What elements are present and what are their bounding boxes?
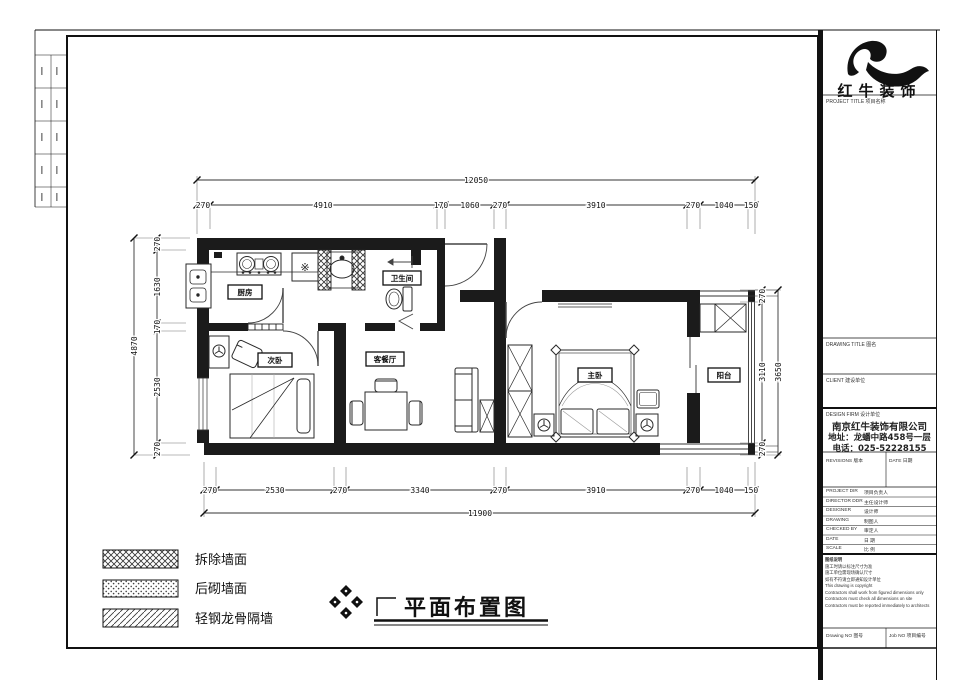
svg-text:3910: 3910 (586, 486, 605, 495)
legend: 拆除墙面 后砌墙面 轻钢龙骨隔墙 (103, 550, 273, 627)
svg-text:270: 270 (153, 442, 162, 457)
label-balcony: 阳台 (717, 370, 732, 380)
drawing-title: 平面布置图 (404, 595, 529, 620)
svg-text:150: 150 (744, 201, 759, 210)
label-living: 客餐厅 (373, 354, 397, 364)
sofa (455, 368, 478, 432)
note-line: This drawing is copyright (825, 583, 872, 588)
drawing-sheet: ※ 厨房 卫生间 次卧 客餐厅 主卧 阳台 (0, 0, 960, 680)
svg-text:3340: 3340 (410, 486, 429, 495)
field-value: 日 期 (864, 537, 875, 544)
label-master: 主卧 (588, 370, 603, 380)
balcony-cabinet (700, 304, 746, 332)
field-label: DIRECTOR DDR (826, 499, 863, 504)
svg-text:1040: 1040 (714, 486, 733, 495)
legend-newwall-label: 后砌墙面 (195, 581, 247, 596)
svg-text:4910: 4910 (313, 201, 332, 210)
sliding-door (248, 324, 283, 330)
svg-text:270: 270 (686, 201, 701, 210)
svg-text:270: 270 (758, 289, 767, 304)
bedroom2-furniture (209, 336, 314, 438)
field-value: 比 例 (864, 546, 875, 553)
revisions-label: REVISIONS 版本 (826, 457, 863, 464)
note-line: 施工单位需现场确认尺寸 (825, 570, 872, 576)
svg-text:270: 270 (686, 486, 701, 495)
field-label: DESIGNER (826, 508, 851, 513)
legend-demolish-label: 拆除墙面 (195, 552, 247, 567)
field-label: CHECKED BY (826, 527, 857, 532)
field-value: 主任设计师 (864, 499, 888, 506)
dimension-ticks (131, 177, 782, 517)
note-line: 如有不符请立即通知设计单位 (825, 577, 881, 583)
svg-text:270: 270 (758, 442, 767, 457)
svg-text:1040: 1040 (714, 201, 733, 210)
svg-text:2530: 2530 (265, 486, 284, 495)
entry-door-arc (445, 244, 487, 286)
field-value: 审定人 (864, 527, 878, 534)
side-cabinet (480, 400, 494, 432)
label-bathroom: 卫生间 (391, 273, 414, 283)
svg-text:270: 270 (153, 237, 162, 252)
svg-text:150: 150 (744, 486, 759, 495)
master-door-arc (506, 302, 542, 338)
dimension-texts: 12050 270 4910 170 1060 270 3910 270 104… (130, 176, 783, 518)
field-label: PROJECT DIR (826, 489, 858, 494)
date-col-label: DATE 日期 (889, 457, 912, 464)
field-value: 项目负责人 (864, 489, 888, 496)
svg-text:1060: 1060 (460, 201, 479, 210)
room-labels: 厨房 卫生间 次卧 客餐厅 主卧 阳台 (228, 271, 740, 382)
field-label: DRAWING (826, 518, 849, 523)
svg-text:3910: 3910 (586, 201, 605, 210)
note-line: 施工时请以标注尺寸为准 (825, 564, 872, 570)
compass-icon (329, 585, 363, 619)
note-line: 图纸说明 (825, 557, 842, 563)
note-line: Contractors must be reported immediately… (825, 603, 929, 608)
field-label: SCALE (826, 546, 842, 551)
margin-strip-marks (41, 67, 58, 201)
drawing-no-label: Drawing NO 图号 (826, 632, 863, 639)
svg-text:170: 170 (153, 320, 162, 335)
bath-door-fold (399, 314, 413, 329)
legend-partition-label: 轻钢龙骨隔墙 (195, 611, 273, 626)
drawing-title-label: DRAWING TITLE 图名 (826, 341, 876, 348)
job-no-label: Job NO 项目编号 (889, 632, 926, 639)
svg-text:1630: 1630 (153, 277, 162, 296)
label-bedroom2: 次卧 (268, 355, 283, 365)
svg-text:3650: 3650 (774, 362, 783, 381)
bathroom-furniture (386, 287, 412, 311)
field-value: 设计师 (864, 508, 878, 515)
svg-text:270: 270 (493, 486, 508, 495)
svg-text:270: 270 (333, 486, 348, 495)
svg-text:4870: 4870 (130, 336, 139, 355)
svg-text:11900: 11900 (468, 509, 492, 518)
svg-text:2530: 2530 (153, 377, 162, 396)
svg-text:270: 270 (203, 486, 218, 495)
field-label: DATE (826, 537, 838, 542)
client-label: CLIENT 建设单位 (826, 377, 865, 384)
plan-canvas: ※ 厨房 卫生间 次卧 客餐厅 主卧 阳台 (0, 0, 960, 680)
svg-text:270: 270 (196, 201, 211, 210)
svg-text:12050: 12050 (464, 176, 488, 185)
label-kitchen: 厨房 (238, 287, 253, 297)
design-firm-label: DESIGN FIRM 设计单位 (826, 411, 880, 418)
dimensions: 12050 270 4910 170 1060 270 3910 270 104… (130, 176, 783, 518)
field-value: 制图人 (864, 518, 878, 525)
svg-text:3110: 3110 (758, 362, 767, 381)
note-line: Contractors shall work from figured dime… (825, 590, 924, 595)
dining-set (350, 379, 422, 430)
svg-text:270: 270 (493, 201, 508, 210)
project-title-label: PROJECT TITLE 项目名称 (826, 98, 886, 105)
appliance-glyph: ※ (300, 261, 309, 274)
note-line: Contractors must check all dimensions on… (825, 596, 912, 601)
drawing-title-group: 平面布置图 (329, 585, 548, 625)
company-phone: 电话：025-52228155 (823, 442, 936, 454)
svg-text:170: 170 (434, 201, 449, 210)
